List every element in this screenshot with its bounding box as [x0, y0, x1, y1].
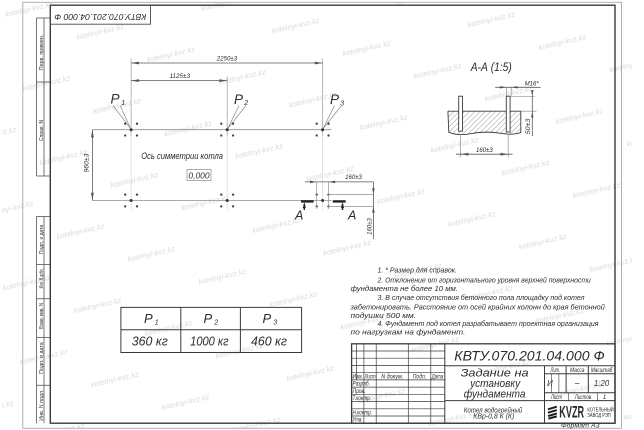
svg-text:P: P: [263, 311, 272, 326]
svg-text:фундамента не более 10 мм.: фундамента не более 10 мм.: [351, 284, 459, 293]
svg-text:Перв. примен.: Перв. примен.: [39, 34, 45, 70]
svg-text:Дата: Дата: [431, 374, 444, 380]
svg-text:Ось симметрии котла: Ось симметрии котла: [141, 151, 223, 162]
svg-text:0,000: 0,000: [188, 170, 210, 180]
svg-text:Подп. и дата: Подп. и дата: [39, 342, 45, 374]
svg-text:Листов: Листов: [574, 395, 591, 401]
svg-text:N докум.: N докум.: [381, 374, 403, 380]
svg-text:забетонировать. Расстояние о: забетонировать. Расстояние от осей крайн…: [350, 302, 605, 311]
svg-text:A: A: [347, 209, 356, 223]
svg-text:P: P: [234, 92, 243, 107]
svg-text:Масса: Масса: [570, 368, 585, 374]
svg-text:Пров.: Пров.: [353, 389, 366, 395]
svg-text:360 кг: 360 кг: [132, 334, 168, 348]
svg-text:Инв. N подл.: Инв. N подл.: [39, 389, 45, 421]
svg-text:Подп. и дата: Подп. и дата: [39, 224, 45, 254]
svg-text:И: И: [547, 379, 553, 388]
svg-text:КВТУ.070.201.04.000 Ф: КВТУ.070.201.04.000 Ф: [54, 12, 146, 21]
svg-text:KVZR: KVZR: [559, 403, 584, 421]
svg-text:960±3: 960±3: [84, 153, 91, 172]
svg-text:Изм.: Изм.: [352, 374, 363, 380]
svg-text:160±3: 160±3: [476, 147, 493, 154]
svg-text:Н.контр.: Н.контр.: [353, 411, 373, 417]
svg-text:2250±3: 2250±3: [216, 55, 238, 62]
svg-text:1: 1: [155, 319, 159, 326]
svg-text:Разраб.: Разраб.: [353, 382, 371, 388]
svg-text:3: 3: [273, 319, 277, 326]
svg-text:Утв.: Утв.: [352, 418, 363, 424]
svg-text:Инв. N дубл.: Инв. N дубл.: [39, 268, 45, 288]
svg-text:1000 кг: 1000 кг: [190, 334, 229, 348]
svg-text:Лист: Лист: [364, 374, 376, 380]
svg-text:P: P: [144, 311, 153, 326]
svg-text:Взам. инв. N: Взам. инв. N: [39, 303, 45, 329]
svg-text:КВТУ.070.201.04.000 Ф: КВТУ.070.201.04.000 Ф: [454, 348, 604, 364]
svg-text:ЗАВОД РЭП: ЗАВОД РЭП: [587, 413, 611, 419]
svg-text:P: P: [204, 311, 213, 326]
svg-text:2: 2: [213, 319, 218, 326]
svg-text:P: P: [111, 92, 120, 107]
svg-text:2: 2: [243, 100, 248, 107]
svg-text:1: 1: [121, 100, 125, 107]
svg-text:Справ. N: Справ. N: [39, 120, 45, 141]
svg-text:3: 3: [340, 101, 344, 108]
svg-text:1:20: 1:20: [594, 379, 610, 388]
svg-text:–: –: [574, 378, 580, 387]
svg-text:Масштаб: Масштаб: [591, 368, 613, 374]
svg-text:А-А (1:5): А-А (1:5): [470, 62, 512, 74]
svg-text:460 кг: 460 кг: [251, 334, 287, 348]
svg-text:1. * Размер для справок.: 1. * Размер для справок.: [378, 265, 458, 274]
svg-text:Лит.: Лит.: [550, 368, 560, 374]
svg-text:A: A: [294, 209, 303, 223]
svg-text:Подп.: Подп.: [413, 374, 427, 380]
svg-text:фундамента: фундамента: [464, 389, 526, 401]
svg-text:160±3: 160±3: [345, 174, 362, 181]
svg-text:КВр-0,8 К (К): КВр-0,8 К (К): [473, 413, 514, 420]
svg-text:по нагрузкам на фундамент.: по нагрузкам на фундамент.: [351, 327, 466, 336]
svg-text:160±3: 160±3: [366, 218, 373, 235]
svg-text:Т.контр.: Т.контр.: [353, 396, 372, 402]
svg-text:1: 1: [603, 395, 606, 401]
svg-text:3. В случае отсутствия бет: 3. В случае отсутствия бетонного пола пл…: [378, 293, 586, 302]
svg-text:Формат А3: Формат А3: [561, 422, 600, 429]
svg-text:50±3: 50±3: [525, 118, 532, 134]
svg-text:1125±3: 1125±3: [170, 73, 191, 80]
svg-text:КОТЕЛЬНЫЙ: КОТЕЛЬНЫЙ: [587, 405, 614, 413]
svg-text:Лист: Лист: [550, 395, 562, 401]
svg-text:М16*: М16*: [525, 81, 539, 88]
svg-text:P: P: [330, 92, 339, 107]
